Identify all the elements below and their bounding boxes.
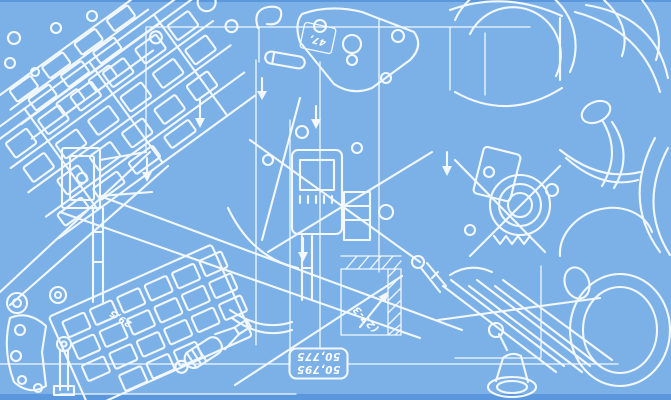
pin-capsule xyxy=(264,51,305,70)
detail-box-drawing: (27-3 xyxy=(341,256,446,335)
dimension-value-upper: 50,795 xyxy=(297,363,341,375)
dimension-value-lower: 50,775 xyxy=(297,350,341,362)
air-cleaner-drawing xyxy=(450,0,668,188)
studded-flange-drawing xyxy=(7,287,74,395)
blueprint-engine-diagram: 47, xyxy=(0,0,671,400)
engine-block-drawing xyxy=(0,0,278,305)
dimension-label-box: 50,795 50,775 xyxy=(290,349,348,379)
tag-47-text: 47, xyxy=(308,33,329,48)
hose-rings-drawing xyxy=(560,208,670,386)
intake-runners-drawing xyxy=(438,268,612,372)
funnel-cup-drawing xyxy=(488,323,536,397)
valve-grid-drawing xyxy=(49,242,258,400)
top-bracket-drawing: 47, xyxy=(256,7,418,92)
